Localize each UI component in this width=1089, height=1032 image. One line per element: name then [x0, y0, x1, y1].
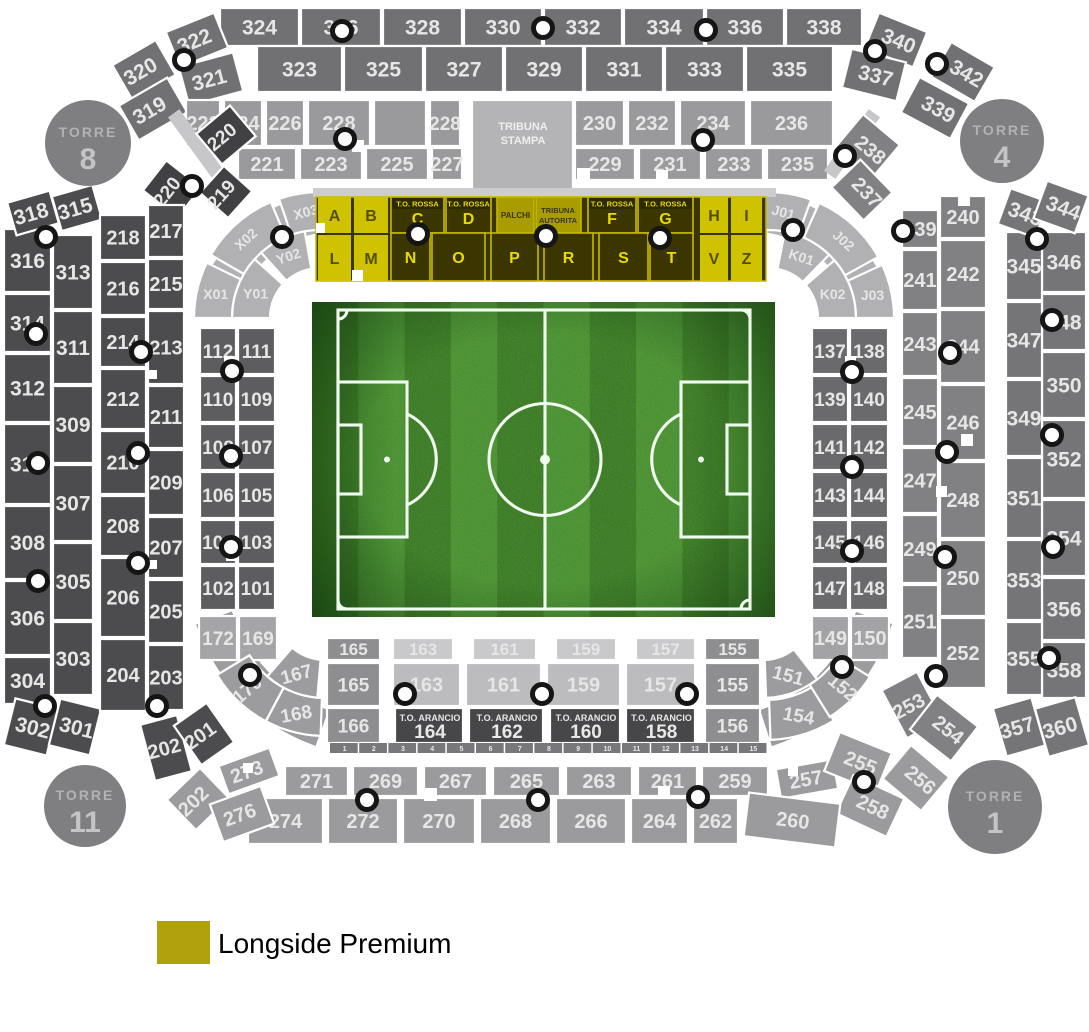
svg-text:161: 161 [490, 640, 518, 659]
svg-text:P: P [509, 250, 520, 267]
svg-text:T.O. ROSSA: T.O. ROSSA [644, 200, 687, 209]
svg-text:270: 270 [422, 811, 455, 833]
svg-text:103: 103 [241, 533, 273, 554]
svg-text:305: 305 [55, 571, 90, 594]
svg-text:X01: X01 [203, 286, 228, 302]
svg-text:101: 101 [241, 579, 273, 600]
svg-text:247: 247 [903, 471, 936, 493]
svg-text:329: 329 [526, 59, 561, 82]
svg-text:T.O. ROSSA: T.O. ROSSA [591, 200, 634, 209]
svg-text:6: 6 [489, 746, 493, 753]
svg-text:T.O. ROSSA: T.O. ROSSA [396, 200, 439, 209]
svg-text:252: 252 [946, 643, 979, 665]
svg-text:262: 262 [699, 811, 732, 833]
svg-text:142: 142 [853, 438, 885, 459]
svg-text:Z: Z [742, 251, 752, 268]
svg-text:15: 15 [750, 746, 758, 753]
svg-text:160: 160 [570, 722, 602, 743]
svg-text:209: 209 [149, 473, 182, 495]
svg-text:106: 106 [202, 486, 234, 507]
svg-text:140: 140 [853, 390, 885, 411]
svg-text:251: 251 [903, 612, 936, 634]
svg-text:4: 4 [430, 746, 434, 753]
svg-text:312: 312 [10, 378, 45, 401]
svg-text:323: 323 [282, 59, 317, 82]
svg-text:12: 12 [662, 746, 670, 753]
svg-text:164: 164 [414, 722, 446, 743]
svg-text:206: 206 [106, 588, 139, 610]
svg-text:3: 3 [401, 746, 405, 753]
svg-text:345: 345 [1006, 256, 1041, 279]
svg-text:229: 229 [588, 154, 621, 176]
svg-text:TORRE: TORRE [973, 122, 1032, 138]
svg-text:TORRE: TORRE [59, 124, 118, 140]
svg-text:349: 349 [1006, 408, 1041, 431]
svg-text:346: 346 [1046, 252, 1081, 275]
svg-text:263: 263 [582, 771, 615, 793]
svg-text:353: 353 [1006, 570, 1041, 593]
svg-text:303: 303 [55, 648, 90, 671]
svg-text:259: 259 [718, 771, 751, 793]
svg-text:250: 250 [946, 568, 979, 590]
svg-text:AUTORITA: AUTORITA [539, 216, 578, 225]
svg-text:246: 246 [946, 413, 979, 435]
svg-text:T: T [667, 250, 677, 267]
svg-text:K02: K02 [820, 286, 846, 302]
svg-text:4: 4 [994, 141, 1011, 174]
svg-text:223: 223 [314, 154, 347, 176]
svg-text:TORRE: TORRE [56, 787, 115, 803]
svg-text:V: V [709, 251, 720, 268]
svg-text:159: 159 [572, 640, 600, 659]
svg-text:304: 304 [10, 670, 45, 693]
svg-text:162: 162 [491, 722, 523, 743]
svg-text:TRIBUNA: TRIBUNA [498, 121, 548, 133]
svg-text:230: 230 [583, 113, 616, 135]
svg-text:STAMPA: STAMPA [501, 135, 546, 147]
svg-text:208: 208 [106, 516, 139, 538]
svg-text:203: 203 [149, 668, 182, 690]
svg-text:11: 11 [69, 806, 101, 839]
svg-text:T.O. ROSSA: T.O. ROSSA [447, 200, 490, 209]
svg-text:266: 266 [574, 811, 607, 833]
svg-text:14: 14 [720, 746, 728, 753]
svg-text:150: 150 [853, 628, 886, 650]
svg-text:243: 243 [903, 334, 936, 356]
svg-text:306: 306 [10, 608, 45, 631]
svg-text:163: 163 [409, 640, 437, 659]
svg-text:143: 143 [814, 486, 846, 507]
svg-text:PALCHI: PALCHI [501, 211, 530, 220]
svg-text:221: 221 [250, 154, 283, 176]
svg-text:260: 260 [775, 808, 811, 834]
svg-text:2: 2 [372, 746, 376, 753]
svg-text:13: 13 [691, 746, 699, 753]
svg-text:1: 1 [343, 746, 347, 753]
svg-text:331: 331 [606, 59, 641, 82]
svg-text:336: 336 [727, 17, 762, 40]
svg-text:N: N [405, 250, 417, 267]
svg-text:218: 218 [106, 228, 139, 250]
svg-text:213: 213 [149, 338, 182, 360]
svg-text:308: 308 [10, 532, 45, 555]
svg-text:105: 105 [241, 486, 273, 507]
svg-text:313: 313 [55, 262, 90, 285]
svg-text:334: 334 [646, 17, 681, 40]
svg-text:330: 330 [485, 17, 520, 40]
svg-text:355: 355 [1006, 648, 1041, 671]
svg-text:138: 138 [853, 342, 885, 363]
svg-text:107: 107 [241, 438, 273, 459]
svg-text:216: 216 [106, 279, 139, 301]
svg-text:Longside Premium: Longside Premium [218, 928, 451, 959]
svg-text:1: 1 [987, 807, 1004, 840]
svg-text:L: L [330, 251, 340, 268]
svg-text:236: 236 [775, 113, 808, 135]
svg-text:156: 156 [717, 716, 749, 737]
svg-text:327: 327 [446, 59, 481, 82]
svg-text:157: 157 [651, 640, 679, 659]
svg-text:141: 141 [814, 438, 846, 459]
svg-text:225: 225 [380, 154, 413, 176]
svg-text:335: 335 [772, 59, 807, 82]
svg-text:8: 8 [547, 746, 551, 753]
svg-text:264: 264 [643, 811, 677, 833]
svg-text:G: G [659, 211, 671, 228]
svg-text:149: 149 [814, 628, 847, 650]
svg-text:O: O [452, 250, 464, 267]
svg-text:325: 325 [366, 59, 401, 82]
svg-text:157: 157 [644, 675, 677, 697]
svg-text:109: 109 [241, 390, 273, 411]
svg-text:227: 227 [430, 154, 463, 176]
svg-text:155: 155 [717, 675, 749, 696]
svg-text:211: 211 [150, 407, 182, 429]
svg-text:11: 11 [633, 746, 641, 753]
svg-text:165: 165 [339, 640, 367, 659]
svg-text:102: 102 [202, 579, 234, 600]
svg-text:137: 137 [814, 342, 846, 363]
svg-text:158: 158 [646, 722, 678, 743]
svg-text:351: 351 [1006, 488, 1041, 511]
svg-text:8: 8 [80, 143, 97, 176]
svg-text:148: 148 [853, 579, 885, 600]
svg-text:161: 161 [487, 675, 520, 697]
svg-text:233: 233 [717, 154, 750, 176]
svg-text:267: 267 [439, 771, 472, 793]
svg-text:TRIBUNA: TRIBUNA [541, 206, 575, 215]
svg-text:241: 241 [903, 270, 936, 292]
svg-text:165: 165 [338, 675, 370, 696]
svg-text:307: 307 [55, 493, 90, 516]
svg-text:B: B [365, 208, 377, 225]
svg-text:316: 316 [10, 250, 45, 273]
svg-text:240: 240 [946, 207, 979, 229]
svg-text:356: 356 [1046, 599, 1081, 622]
svg-text:324: 324 [242, 17, 277, 40]
svg-text:268: 268 [499, 811, 532, 833]
svg-text:235: 235 [781, 154, 814, 176]
svg-text:212: 212 [106, 389, 139, 411]
svg-text:207: 207 [149, 538, 182, 560]
svg-text:9: 9 [576, 746, 580, 753]
svg-text:272: 272 [346, 811, 379, 833]
svg-text:159: 159 [567, 675, 600, 697]
svg-text:F: F [607, 211, 617, 228]
svg-text:10: 10 [604, 746, 612, 753]
svg-text:R: R [563, 250, 575, 267]
svg-text:155: 155 [718, 640, 746, 659]
svg-text:338: 338 [806, 17, 841, 40]
svg-text:311: 311 [56, 337, 90, 360]
svg-text:J03: J03 [861, 287, 885, 303]
svg-text:TORRE: TORRE [966, 788, 1025, 804]
svg-text:309: 309 [55, 414, 90, 437]
svg-text:Y01: Y01 [243, 285, 268, 301]
svg-text:A: A [329, 208, 341, 225]
svg-text:269: 269 [369, 771, 402, 793]
svg-text:248: 248 [946, 490, 979, 512]
svg-text:169: 169 [242, 629, 274, 650]
svg-text:333: 333 [687, 59, 722, 82]
svg-text:249: 249 [903, 539, 936, 561]
svg-text:245: 245 [903, 402, 936, 424]
svg-text:D: D [463, 211, 475, 228]
svg-text:5: 5 [459, 746, 463, 753]
svg-text:350: 350 [1046, 375, 1081, 398]
svg-text:166: 166 [338, 716, 370, 737]
svg-text:7: 7 [518, 746, 522, 753]
svg-text:204: 204 [106, 665, 140, 687]
svg-text:205: 205 [149, 602, 182, 624]
svg-text:242: 242 [946, 264, 979, 286]
svg-text:215: 215 [149, 274, 182, 296]
svg-text:332: 332 [565, 17, 600, 40]
svg-text:S: S [618, 250, 629, 267]
svg-text:347: 347 [1006, 330, 1041, 353]
svg-text:228: 228 [429, 114, 461, 135]
svg-text:147: 147 [814, 579, 846, 600]
svg-text:328: 328 [405, 17, 440, 40]
svg-text:110: 110 [203, 390, 234, 411]
svg-text:226: 226 [268, 113, 301, 135]
svg-text:M: M [364, 251, 377, 268]
svg-text:217: 217 [149, 221, 182, 243]
svg-text:I: I [744, 208, 748, 225]
svg-text:172: 172 [202, 629, 234, 650]
svg-text:H: H [708, 208, 720, 225]
svg-text:111: 111 [242, 342, 272, 363]
svg-text:144: 144 [853, 486, 885, 507]
svg-text:139: 139 [814, 390, 846, 411]
svg-text:232: 232 [635, 113, 668, 135]
svg-text:352: 352 [1046, 449, 1081, 472]
svg-text:271: 271 [300, 771, 333, 793]
